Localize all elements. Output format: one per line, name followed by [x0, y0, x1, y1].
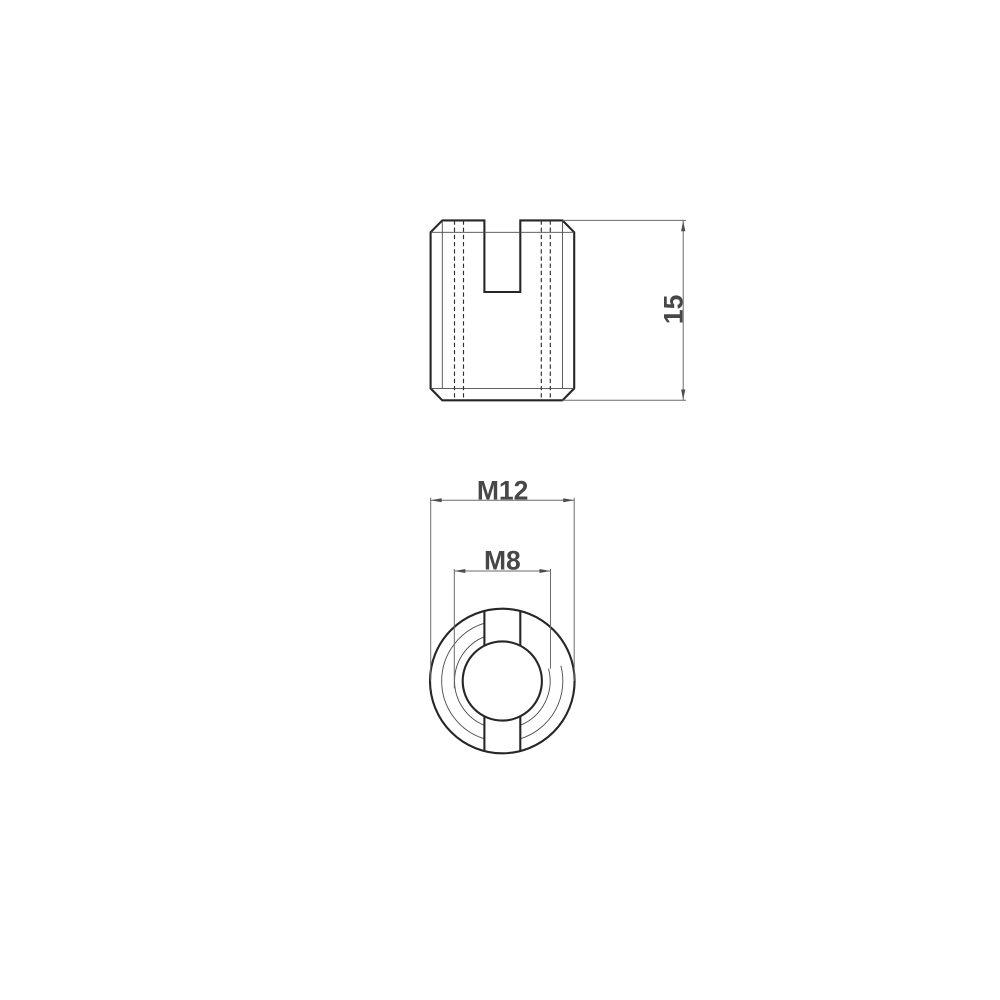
svg-text:15: 15	[658, 295, 688, 324]
svg-text:M12: M12	[477, 475, 529, 505]
svg-text:M8: M8	[484, 546, 521, 576]
